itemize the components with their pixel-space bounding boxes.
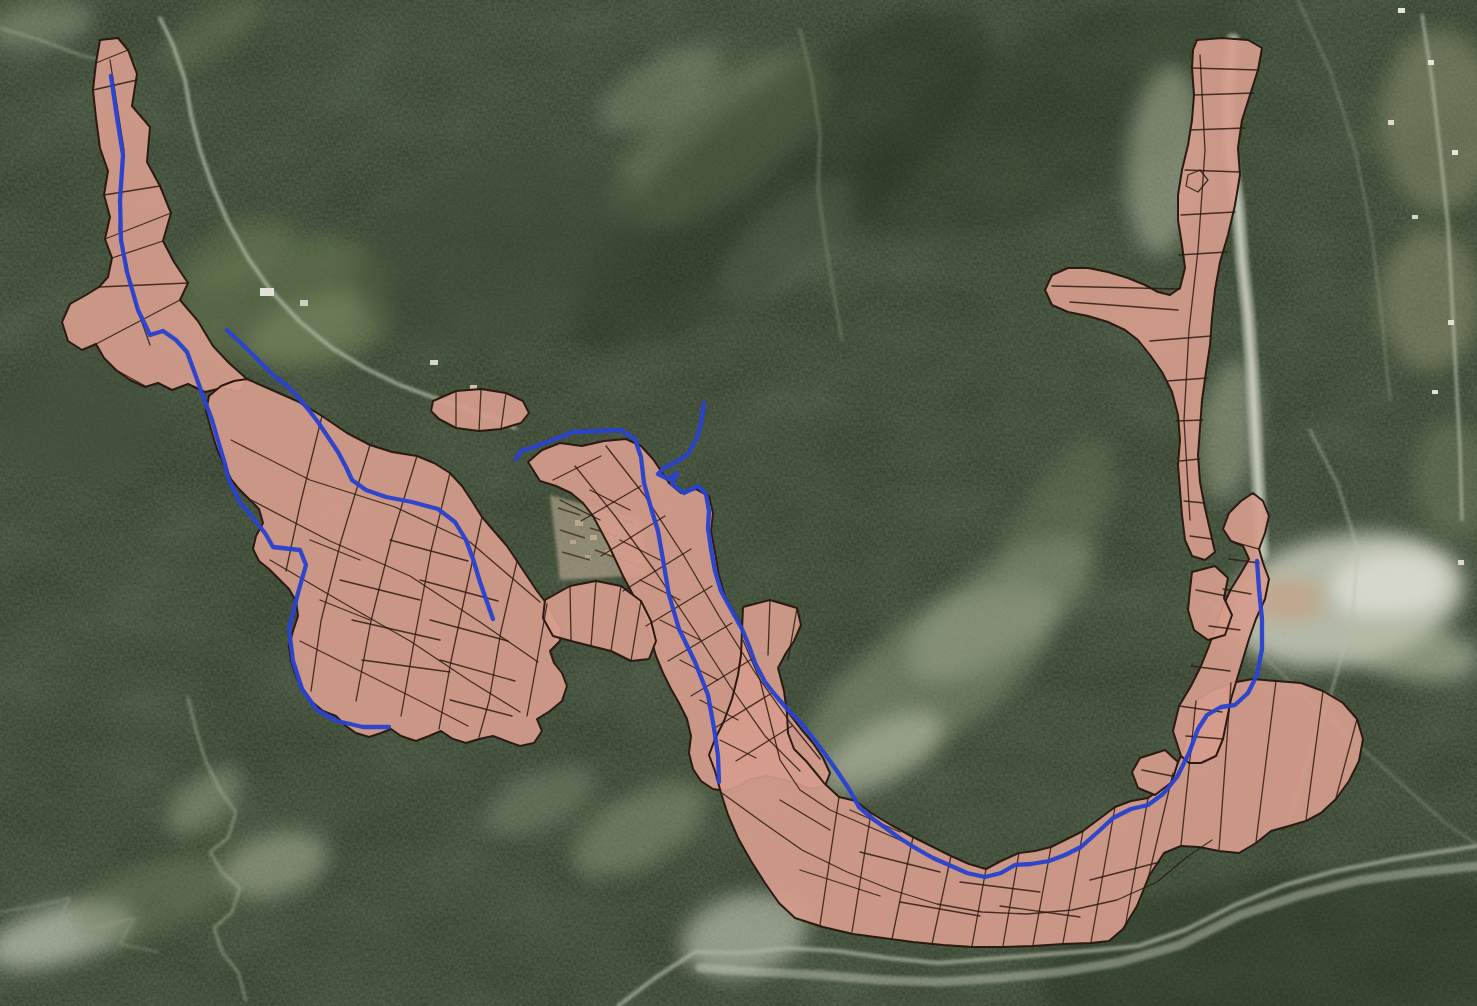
- map-viewport[interactable]: [0, 0, 1477, 1006]
- satellite-map-svg: [0, 0, 1477, 1006]
